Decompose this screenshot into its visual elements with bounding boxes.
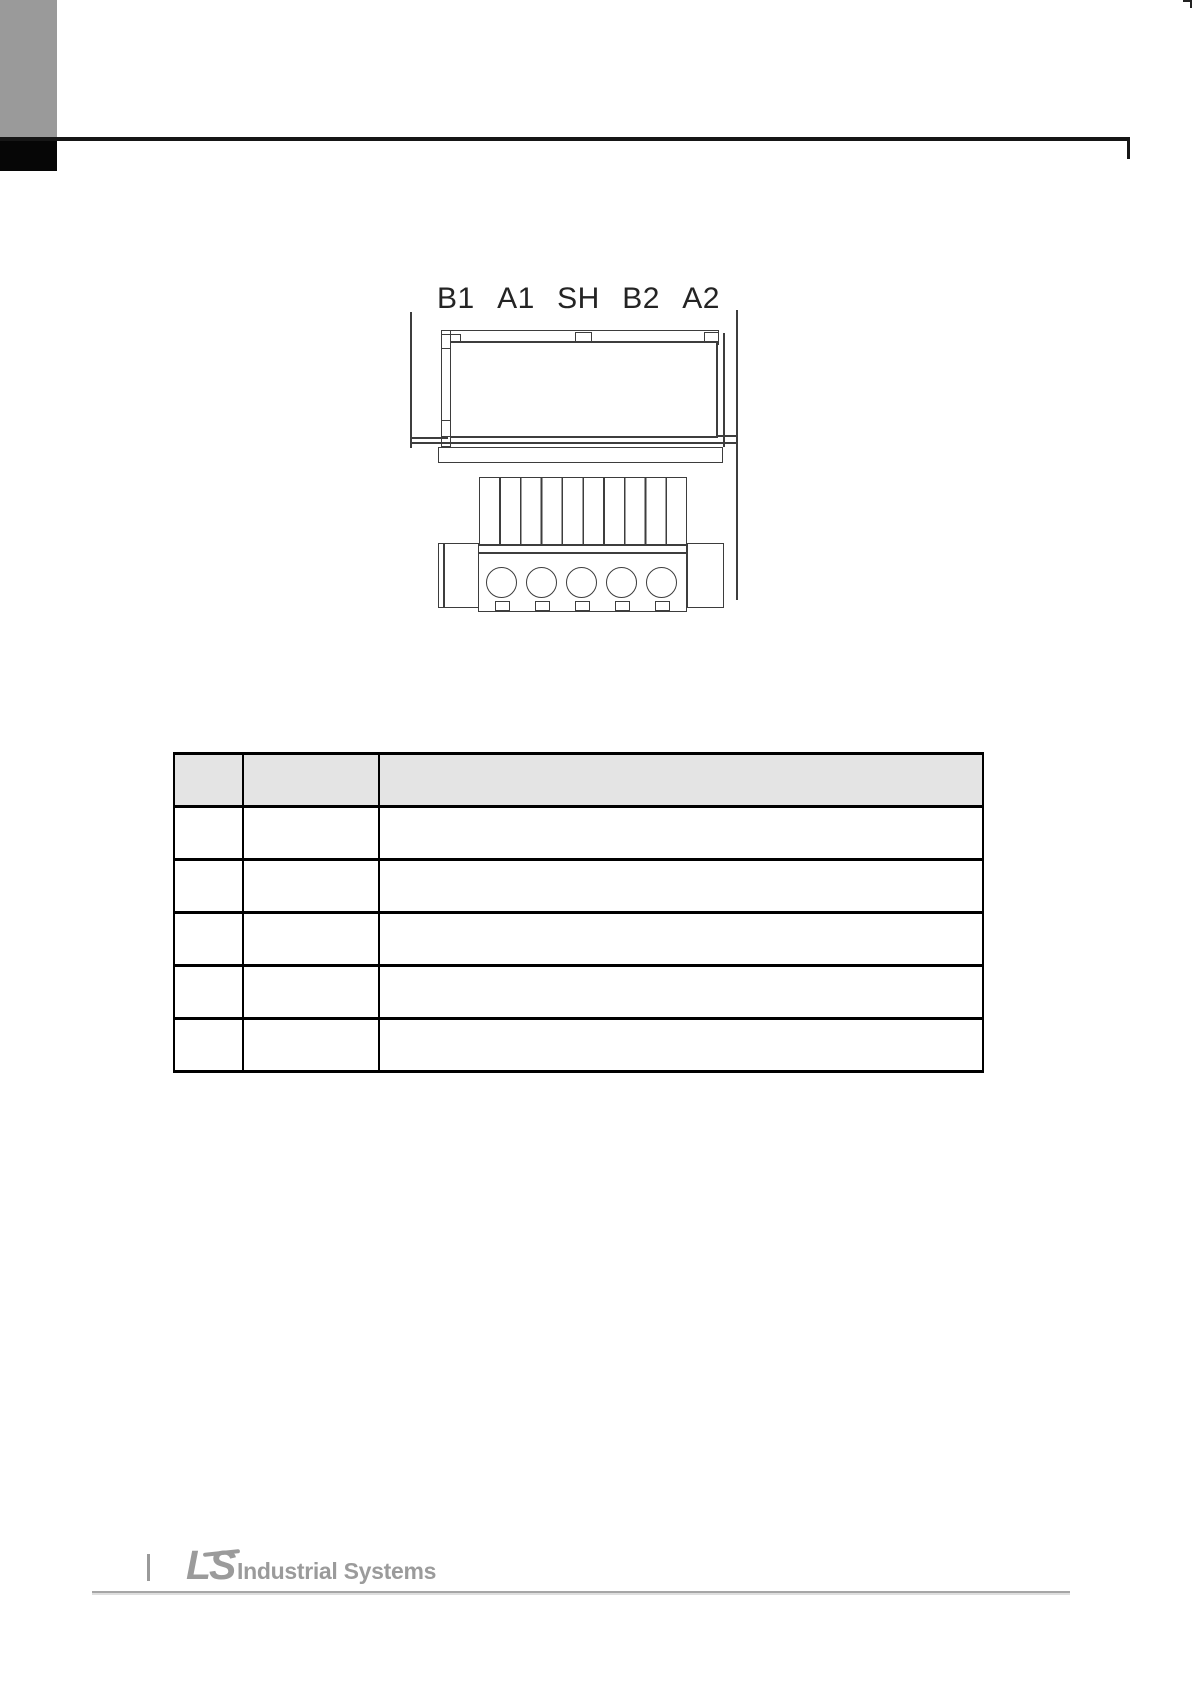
screw-terminal-5 [646,567,677,598]
terminal-left-latch-top [441,334,451,349]
terminal-bottom-double-line [447,442,719,444]
table-cell [379,1019,983,1072]
table-header-row [174,754,983,807]
terminal-label-b2: B2 [622,282,660,316]
chapter-tab-black-block [0,141,57,171]
table-cell [243,966,379,1019]
wire-line-lower [411,442,448,444]
terminal-label-a2: A2 [682,282,720,316]
table-row [174,1019,983,1072]
terminal-mounting-flange [438,447,723,463]
chapter-tab [0,0,57,137]
table-cell [379,913,983,966]
header-rule [0,137,1130,141]
table-cell [174,1019,243,1072]
screw-terminal-2 [526,567,557,598]
terminal-label-b1: B1 [437,282,475,316]
terminal-lug-4 [615,601,630,611]
table-cell [243,860,379,913]
table-cell [379,807,983,860]
screw-terminal-4 [606,567,637,598]
table-cell [174,913,243,966]
table-row [174,913,983,966]
footer-separator-bar [147,1554,150,1581]
wire-line-upper [411,437,448,439]
table-header-cell [174,754,243,807]
table-cell [174,807,243,860]
terminal-label-row: B1 A1 SH B2 A2 [437,282,720,316]
connector-body-top-line [479,552,686,554]
terminal-lug-3 [575,601,590,611]
connector-right-bracket [687,543,724,608]
diagram-left-reference-line [410,312,412,448]
header-rule-end-tick [1127,141,1130,159]
table-cell [174,966,243,1019]
table-cell [243,913,379,966]
terminal-lug-5 [655,601,670,611]
diagram-right-reference-line [736,310,738,600]
terminal-label-a1: A1 [497,282,535,316]
terminal-block-body [447,341,718,438]
table-row [174,807,983,860]
terminal-label-sh: SH [557,282,600,316]
terminal-lug-2 [535,601,550,611]
table-cell [243,1019,379,1072]
terminal-lug-1 [495,601,510,611]
terminal-bottom-line-extension-upper [718,435,738,437]
table-cell [243,807,379,860]
terminal-bottom-line-extension-lower [718,442,738,444]
screw-terminal-3 [566,567,597,598]
spec-table [173,752,984,1073]
connector-left-bracket-inner-line [443,544,445,607]
table-header-cell [379,754,983,807]
connector-fin-block [479,477,687,545]
document-page: B1 A1 SH B2 A2 [0,0,1192,1685]
screw-terminal-1 [486,567,517,598]
terminal-left-latch-bottom [441,420,451,437]
table-row [174,860,983,913]
ls-logo-wordmark: Industrial Systems [237,1560,436,1583]
table-cell [174,860,243,913]
footer-rule [92,1591,1070,1593]
table-cell [379,860,983,913]
terminal-right-inner-edge [723,333,725,447]
table-cell [379,966,983,1019]
table-row [174,966,983,1019]
table-header-cell [243,754,379,807]
